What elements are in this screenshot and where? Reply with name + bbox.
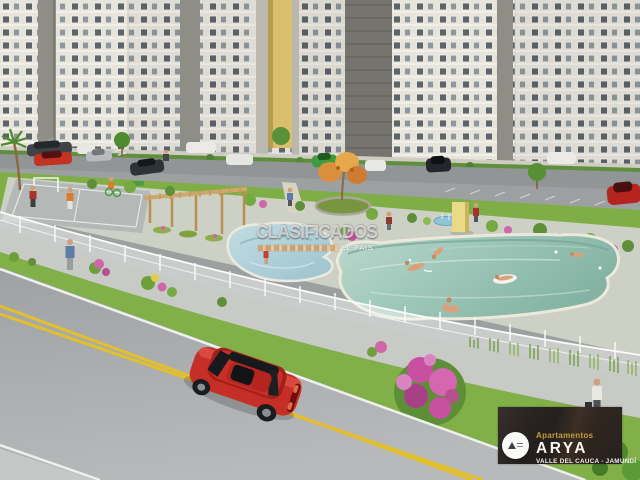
car-white: [226, 154, 253, 165]
court-player-orange: [67, 187, 74, 209]
car-white: [365, 160, 386, 171]
render-screenshot: CLASIFICADOS EL PAÍS Apartamentos ARYA V…: [0, 0, 640, 480]
arya-logo-circle: [502, 432, 529, 459]
apartment-towers: [0, 0, 640, 172]
car-white: [186, 142, 216, 153]
badge-location: VALLE DEL CAUCA - JAMUNDÍ: [536, 459, 636, 465]
car-white: [547, 152, 576, 164]
arya-mountain-logo-icon: [508, 441, 523, 451]
arya-badge: Apartamentos ARYA VALLE DEL CAUCA - JAMU…: [498, 407, 622, 464]
main-pool: [337, 234, 618, 319]
badge-brand-line: Apartamentos: [536, 432, 636, 440]
kids-pool: [228, 223, 333, 281]
court-player-red: [30, 185, 37, 207]
badge-project-name: ARYA: [536, 441, 636, 457]
